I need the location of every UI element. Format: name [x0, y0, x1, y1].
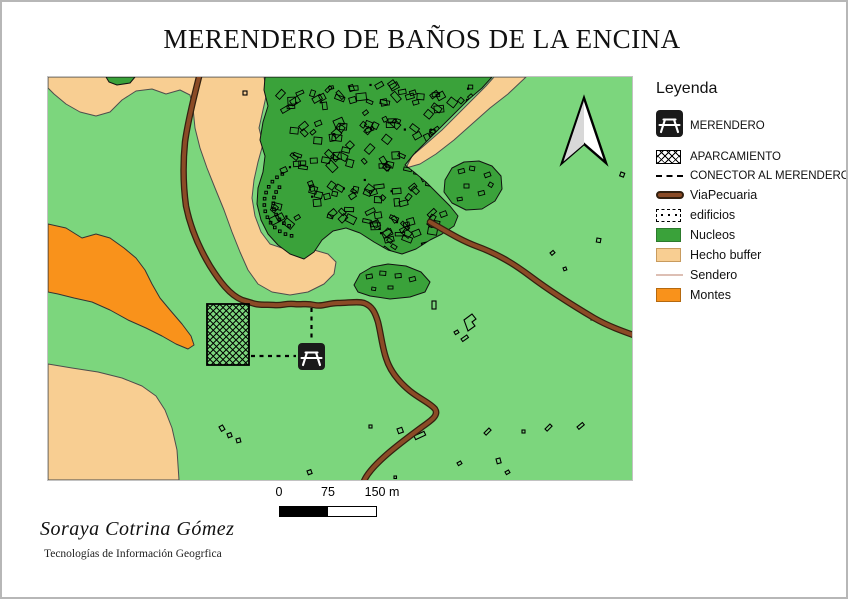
dashed-line-swatch	[656, 175, 683, 177]
legend-item-label: Montes	[690, 288, 731, 302]
legend-item-label: Hecho buffer	[690, 248, 761, 262]
legend-item-label: APARCAMIENTO	[690, 151, 781, 163]
legend: Leyenda MERENDEROAPARCAMIENTOCONECTOR AL…	[656, 80, 846, 308]
legend-item-merendero: MERENDERO	[656, 110, 846, 142]
scale-bar-white-segment	[328, 507, 376, 516]
legend-item-montes: Montes	[656, 288, 846, 302]
aparcamiento-symbol	[656, 150, 690, 164]
legend-item-label: MERENDERO	[690, 120, 765, 132]
legend-item-label: ViaPecuaria	[690, 188, 757, 202]
merendero-picnic-table-icon	[656, 110, 683, 137]
legend-item-viapecuaria: ViaPecuaria	[656, 188, 846, 202]
legend-item-aparcamiento: APARCAMIENTO	[656, 150, 846, 164]
course-subtitle: Tecnologías de Información Geogrfica	[44, 548, 234, 560]
legend-item-hecho_buffer: Hecho buffer	[656, 248, 846, 262]
legend-item-label: CONECTOR AL MERENDERO	[690, 170, 848, 182]
legend-item-label: Sendero	[690, 268, 737, 282]
legend-item-edificios: edificios	[656, 208, 846, 222]
scale-bar: 0 75 150 m	[252, 485, 432, 521]
credits-block: Soraya Cotrina Gómez Tecnologías de Info…	[40, 518, 234, 560]
buildings-swatch	[656, 209, 681, 222]
map-layout-page: MERENDERO DE BAÑOS DE LA ENCINA Leyenda …	[0, 0, 848, 599]
author-name: Soraya Cotrina Gómez	[40, 518, 234, 541]
edificios-symbol	[656, 209, 690, 222]
scale-label-75: 75	[321, 485, 335, 499]
legend-item-label: Nucleos	[690, 228, 735, 242]
scale-label-150: 150 m	[365, 485, 400, 499]
merendero-symbol	[656, 110, 690, 142]
scale-label-0: 0	[276, 485, 283, 499]
map-svg	[48, 77, 632, 480]
building-dots	[661, 214, 663, 216]
legend-item-label: edificios	[690, 208, 735, 222]
merendero-map-icon	[298, 343, 325, 370]
montes-symbol	[656, 288, 690, 302]
nucleos-symbol	[656, 228, 690, 242]
legend-item-conector: CONECTOR AL MERENDERO	[656, 170, 846, 182]
legend-rows: MERENDEROAPARCAMIENTOCONECTOR AL MERENDE…	[656, 110, 846, 302]
viapecuaria-symbol	[656, 191, 690, 199]
page-title: MERENDERO DE BAÑOS DE LA ENCINA	[2, 24, 842, 55]
legend-title: Leyenda	[656, 80, 846, 98]
legend-item-nucleos: Nucleos	[656, 228, 846, 242]
crosshatch-swatch	[656, 150, 681, 164]
montes-swatch	[656, 288, 681, 302]
scale-bar-black-segment	[280, 507, 328, 516]
nucleos-swatch	[656, 228, 681, 242]
buffer-swatch	[656, 248, 681, 262]
map-canvas	[48, 77, 632, 480]
scale-bar-graphic	[279, 506, 377, 517]
legend-item-sendero: Sendero	[656, 268, 846, 282]
road-line-swatch	[656, 191, 684, 199]
conector-symbol	[656, 175, 690, 177]
sendero-symbol	[656, 274, 690, 276]
aparcamiento-area	[207, 304, 249, 365]
hecho_buffer-symbol	[656, 248, 690, 262]
sendero-line-swatch	[656, 274, 683, 276]
